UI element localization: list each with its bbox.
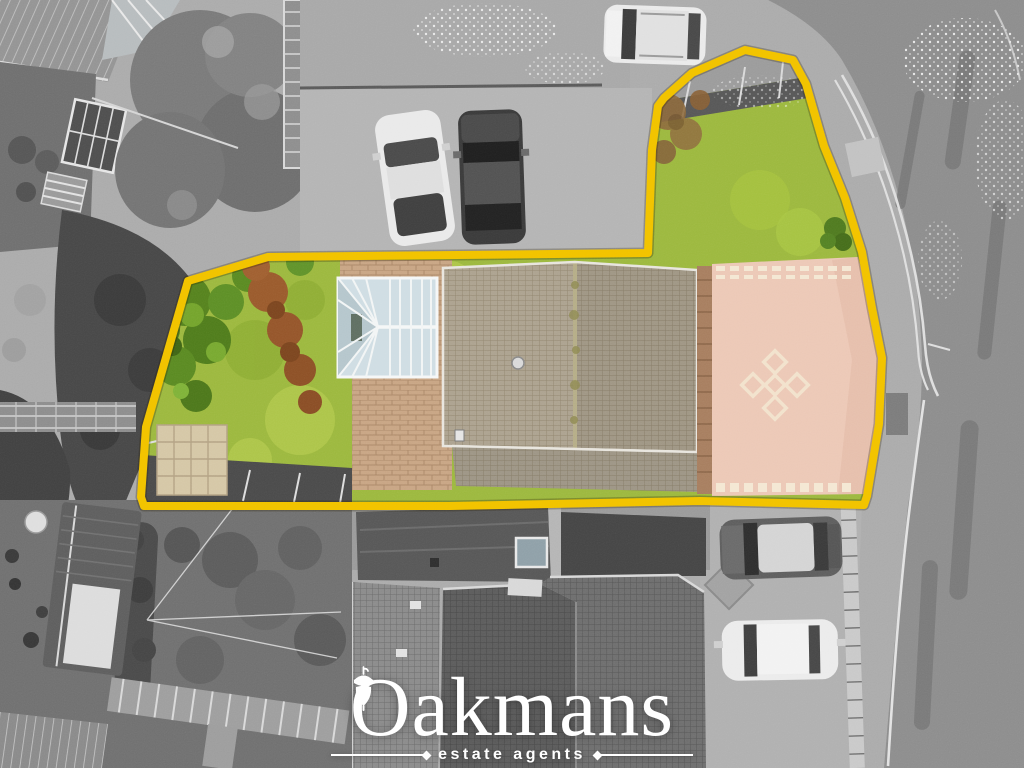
aerial-photo: Oakmans estate agents	[0, 0, 1024, 768]
photo-grain	[0, 0, 1024, 768]
photo-canvas	[0, 0, 1024, 768]
